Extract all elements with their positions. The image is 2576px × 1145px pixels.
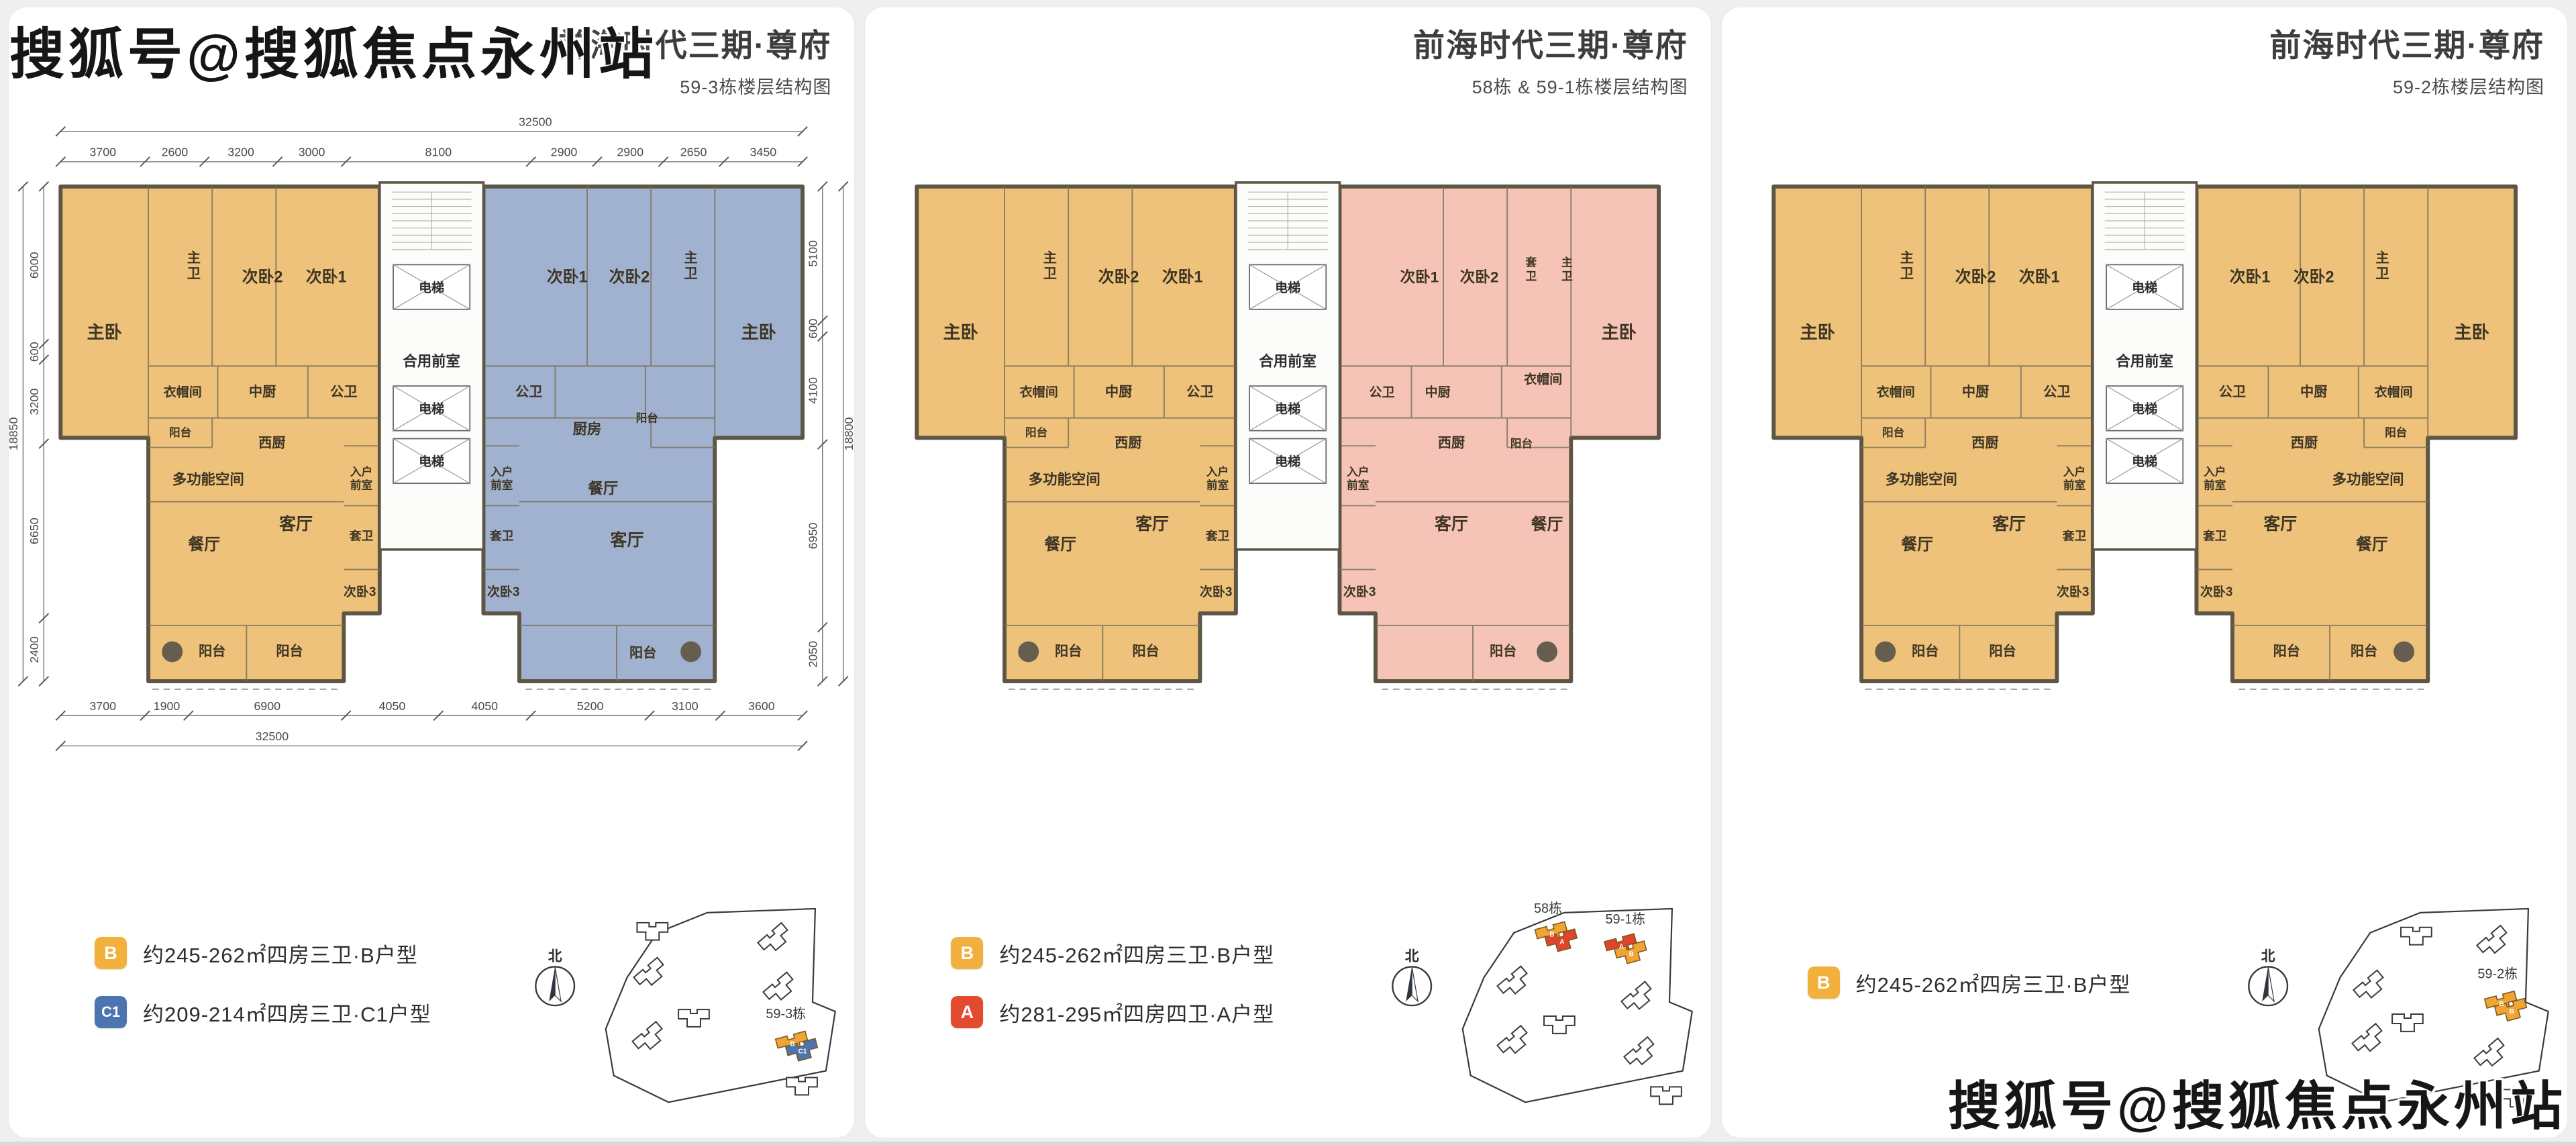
room-label: 次卧1 bbox=[1162, 268, 1203, 287]
room-label: 衣帽间 bbox=[1876, 385, 1914, 400]
room-label: 套卫 bbox=[2203, 529, 2227, 543]
room-label: 套卫 bbox=[1206, 529, 1230, 543]
room-label: 餐厅 bbox=[1531, 515, 1563, 534]
room-label: 阳台 bbox=[1490, 643, 1516, 659]
elevator-icon: 电梯 bbox=[1249, 264, 1326, 309]
dim-label: 3700 bbox=[89, 146, 116, 159]
highlight-building-label: 58栋 bbox=[1534, 901, 1562, 916]
room-label: 主卧 bbox=[741, 322, 776, 342]
room-label: 餐厅 bbox=[189, 536, 221, 554]
room-label: 主卫 bbox=[1900, 250, 1913, 282]
room-label: 西厨 bbox=[258, 436, 285, 451]
room-label: 餐厅 bbox=[1045, 536, 1077, 554]
room-label: 主卫 bbox=[1043, 250, 1057, 282]
dim-total-label: 18800 bbox=[842, 417, 854, 451]
highlight-building-label: 59-2栋 bbox=[2477, 966, 2518, 981]
panel-59-2: 前海时代三期·尊府 59-2栋楼层结构图 电梯电梯电梯合用前室主卧主卫次卧2次卧… bbox=[1721, 7, 2568, 1138]
room-label: 阳台 bbox=[1133, 643, 1160, 659]
room-label: 西厨 bbox=[1438, 436, 1465, 451]
legend-item: A约281-295㎡四房四卫·A户型 bbox=[951, 996, 1274, 1028]
dim-total-label: 32500 bbox=[519, 115, 552, 128]
dim-label: 3200 bbox=[227, 146, 254, 159]
room-label: 阳台 bbox=[1912, 643, 1939, 659]
dim-label: 3100 bbox=[672, 699, 699, 713]
unit-left bbox=[60, 187, 380, 689]
room-label: 阳台 bbox=[1510, 437, 1533, 450]
panel-subtitle: 59-3栋楼层结构图 bbox=[9, 72, 831, 99]
room-label: 主卧 bbox=[87, 322, 122, 342]
panel-bottom: B约245-262㎡四房三卫·B户型C1约209-214㎡四房三卫·C1户型 北… bbox=[9, 828, 854, 1138]
legend-item: B约245-262㎡四房三卫·B户型 bbox=[95, 937, 431, 969]
north-label: 北 bbox=[548, 948, 562, 964]
unit-left bbox=[1773, 187, 2093, 689]
dim-label: 6900 bbox=[254, 699, 280, 713]
site-map: 北BC159-3栋 bbox=[527, 901, 854, 1138]
legend: B约245-262㎡四房三卫·B户型A约281-295㎡四房四卫·A户型 bbox=[951, 828, 1274, 1138]
dim-label: 2400 bbox=[28, 636, 41, 663]
elevator-label: 电梯 bbox=[2132, 401, 2157, 417]
elevator-icon: 电梯 bbox=[393, 386, 470, 431]
room-label: 套卫 bbox=[490, 529, 514, 543]
highlight-building-label: 59-3栋 bbox=[766, 1007, 807, 1022]
dim-label: 3700 bbox=[89, 699, 116, 713]
dim-label: 8100 bbox=[425, 146, 452, 159]
dim-label: 2050 bbox=[806, 641, 819, 668]
panel-subtitle: 59-2栋楼层结构图 bbox=[1722, 72, 2544, 99]
room-label: 阳台 bbox=[1025, 426, 1047, 439]
dim-label: 600 bbox=[28, 342, 41, 362]
panel-bottom: B约245-262㎡四房三卫·B户型 北BB59-2栋 bbox=[1722, 828, 2567, 1138]
site-map-svg: 北BC159-3栋 bbox=[527, 901, 854, 1134]
room-label: 阳台 bbox=[2273, 643, 2300, 659]
dim-label: 6000 bbox=[28, 252, 41, 279]
room-label: 衣帽间 bbox=[1524, 372, 1562, 387]
room-label: 阳台 bbox=[199, 643, 225, 659]
room-label: 阳台 bbox=[1989, 643, 2016, 659]
room-label: 餐厅 bbox=[588, 481, 618, 497]
room-label: 中厨 bbox=[249, 384, 276, 400]
room-label: 公卫 bbox=[515, 385, 542, 400]
room-label: 餐厅 bbox=[1901, 536, 1933, 554]
room-label: 公卫 bbox=[2043, 385, 2070, 400]
room-label: 阳台 bbox=[636, 411, 658, 425]
room-label: 次卧1 bbox=[547, 268, 588, 287]
dim-label: 1900 bbox=[154, 699, 181, 713]
room-label: 套卫 bbox=[350, 529, 374, 543]
room-label: 次卧3 bbox=[1200, 584, 1233, 599]
elevator-icon: 电梯 bbox=[2106, 439, 2183, 484]
room-label: 次卧2 bbox=[242, 268, 283, 287]
room-label: 次卧1 bbox=[2018, 268, 2059, 287]
elevator-label: 电梯 bbox=[419, 401, 444, 417]
elevator-label: 电梯 bbox=[1275, 454, 1300, 469]
building-footprint bbox=[787, 1077, 818, 1095]
dim-label: 2900 bbox=[617, 146, 643, 159]
site-map: 北BB59-2栋 bbox=[2240, 901, 2567, 1138]
room-label: 中厨 bbox=[1425, 385, 1451, 400]
room-label: 次卧3 bbox=[2200, 584, 2233, 599]
elevator-icon: 电梯 bbox=[1249, 439, 1326, 484]
room-label: 主卫 bbox=[2375, 250, 2389, 282]
room-label: 套卫 bbox=[2062, 529, 2086, 543]
panel-title: 前海时代三期·尊府 bbox=[865, 19, 1688, 66]
elevator-label: 电梯 bbox=[419, 280, 444, 295]
legend-badge: B bbox=[951, 937, 983, 969]
legend-label: 约245-262㎡四房三卫·B户型 bbox=[999, 938, 1274, 968]
room-label: 西厨 bbox=[1115, 436, 1141, 451]
page: 前海时代三期·尊府 59-3栋楼层结构图 电梯电梯电梯合用前室主卧主卫次卧2次卧… bbox=[0, 0, 2576, 1145]
room-label: 主卧 bbox=[943, 322, 978, 342]
legend-badge: B bbox=[1808, 966, 1840, 999]
core-area: 电梯电梯电梯合用前室 bbox=[2093, 183, 2197, 550]
unit-left bbox=[917, 187, 1237, 689]
panels-row: 前海时代三期·尊府 59-3栋楼层结构图 电梯电梯电梯合用前室主卧主卫次卧2次卧… bbox=[0, 0, 2576, 1145]
elevator-label: 电梯 bbox=[1275, 280, 1300, 295]
room-label: 公卫 bbox=[1370, 385, 1395, 400]
floorplan: 电梯电梯电梯合用前室主卧主卫次卧2次卧1衣帽间中厨公卫阳台西厨多功能空间餐厅客厅… bbox=[865, 103, 1710, 828]
panel-59-3: 前海时代三期·尊府 59-3栋楼层结构图 电梯电梯电梯合用前室主卧主卫次卧2次卧… bbox=[8, 7, 855, 1138]
room-label: 阳台 bbox=[276, 643, 303, 659]
unit-right bbox=[483, 187, 803, 689]
legend-item: C1约209-214㎡四房三卫·C1户型 bbox=[95, 996, 431, 1028]
legend: B约245-262㎡四房三卫·B户型 bbox=[1808, 828, 2131, 1138]
room-label: 阳台 bbox=[1055, 643, 1082, 659]
room-label: 次卧2 bbox=[1460, 268, 1499, 286]
room-label: 多功能空间 bbox=[1885, 470, 1957, 487]
room-label: 公卫 bbox=[2218, 385, 2245, 400]
room-label: 次卧3 bbox=[1343, 584, 1376, 599]
room-label: 西厨 bbox=[1971, 436, 1998, 451]
elevator-label: 电梯 bbox=[2132, 280, 2157, 295]
legend-item: B约245-262㎡四房三卫·B户型 bbox=[951, 937, 1274, 969]
highlight-unit-letter: B bbox=[2500, 1001, 2504, 1008]
legend-item: B约245-262㎡四房三卫·B户型 bbox=[1808, 966, 2131, 999]
room-label: 主卧 bbox=[1800, 322, 1835, 342]
room-label: 衣帽间 bbox=[1020, 385, 1058, 400]
floorplan-svg: 电梯电梯电梯合用前室主卧主卫次卧2次卧1衣帽间中厨公卫阳台西厨多功能空间餐厅客厅… bbox=[1722, 103, 2567, 828]
elevator-label: 电梯 bbox=[419, 454, 444, 469]
dim-label: 6650 bbox=[28, 517, 41, 544]
room-label: 次卧2 bbox=[2294, 268, 2334, 287]
room-label: 主卫 bbox=[187, 250, 201, 282]
panel-title: 前海时代三期·尊府 bbox=[1722, 19, 2544, 66]
floorplan: 电梯电梯电梯合用前室主卧主卫次卧2次卧1衣帽间中厨公卫阳台西厨多功能空间餐厅客厅… bbox=[1722, 103, 2567, 828]
north-label: 北 bbox=[2261, 948, 2275, 964]
room-label: 餐厅 bbox=[2356, 536, 2388, 554]
dim-label: 2650 bbox=[680, 146, 707, 159]
room-label: 厨房 bbox=[573, 420, 602, 437]
room-label: 次卧3 bbox=[2057, 584, 2090, 599]
room-label: 次卧1 bbox=[306, 268, 347, 287]
highlight-unit-letter: C1 bbox=[798, 1048, 807, 1056]
room-label: 阳台 bbox=[169, 426, 191, 439]
room-label: 客厅 bbox=[611, 530, 644, 550]
room-label: 次卧2 bbox=[1955, 268, 1996, 287]
room-label: 多功能空间 bbox=[2332, 470, 2404, 487]
dim-label: 3200 bbox=[28, 389, 41, 415]
building-footprint bbox=[1651, 1087, 1682, 1104]
room-label: 主卧 bbox=[1602, 322, 1637, 342]
dim-label: 2600 bbox=[162, 146, 189, 159]
room-label: 公卫 bbox=[330, 385, 357, 400]
panel-subtitle: 58栋 & 59-1栋楼层结构图 bbox=[865, 72, 1688, 99]
dim-total-label: 18850 bbox=[9, 417, 20, 451]
elevator-icon: 电梯 bbox=[1249, 386, 1326, 431]
elevator-icon: 电梯 bbox=[393, 439, 470, 484]
legend-badge: B bbox=[95, 937, 127, 969]
site-boundary bbox=[606, 909, 835, 1102]
room-label: 中厨 bbox=[1105, 384, 1132, 400]
room-label: 中厨 bbox=[1962, 384, 1989, 400]
room-label: 西厨 bbox=[2290, 436, 2317, 451]
floorplan-svg: 电梯电梯电梯合用前室主卧主卫次卧2次卧1衣帽间中厨公卫阳台西厨多功能空间餐厅客厅… bbox=[9, 103, 854, 828]
legend-label: 约245-262㎡四房三卫·B户型 bbox=[1856, 968, 2131, 998]
legend-label: 约281-295㎡四房四卫·A户型 bbox=[999, 997, 1274, 1028]
legend-label: 约245-262㎡四房三卫·B户型 bbox=[143, 938, 418, 968]
dim-label: 4100 bbox=[806, 377, 819, 404]
dim-label: 5100 bbox=[806, 240, 819, 267]
room-label: 次卧2 bbox=[609, 268, 650, 287]
room-label: 次卧1 bbox=[2229, 268, 2270, 287]
room-label: 公卫 bbox=[1187, 385, 1214, 400]
core-area: 电梯电梯电梯合用前室 bbox=[380, 183, 484, 550]
room-label: 阳台 bbox=[2385, 426, 2407, 439]
panel-header: 前海时代三期·尊府 58栋 & 59-1栋楼层结构图 bbox=[865, 7, 1710, 99]
room-label: 次卧2 bbox=[1098, 268, 1139, 287]
dim-label: 3600 bbox=[748, 699, 775, 713]
highlight-unit-letter: A bbox=[1559, 939, 1564, 946]
floorplan: 电梯电梯电梯合用前室主卧主卫次卧2次卧1衣帽间中厨公卫阳台西厨多功能空间餐厅客厅… bbox=[9, 103, 854, 828]
legend: B约245-262㎡四房三卫·B户型C1约209-214㎡四房三卫·C1户型 bbox=[95, 828, 431, 1138]
dim-label: 6950 bbox=[806, 522, 819, 549]
room-label: 主卧 bbox=[2454, 322, 2489, 342]
highlight-unit-letter: B bbox=[2509, 1008, 2514, 1015]
site-map-svg: 北BA58栋AB59-1栋 bbox=[1384, 901, 1711, 1134]
room-label: 衣帽间 bbox=[2374, 385, 2412, 400]
room-label: 客厅 bbox=[1435, 514, 1468, 534]
floorplan-svg: 电梯电梯电梯合用前室主卧主卫次卧2次卧1衣帽间中厨公卫阳台西厨多功能空间餐厅客厅… bbox=[865, 103, 1710, 828]
elevator-label: 电梯 bbox=[1275, 401, 1300, 417]
room-label: 多功能空间 bbox=[1029, 470, 1100, 487]
legend-label: 约209-214㎡四房三卫·C1户型 bbox=[143, 997, 431, 1028]
compass-icon: 北 bbox=[2249, 948, 2287, 1005]
compass-icon: 北 bbox=[536, 948, 575, 1005]
dim-label: 5200 bbox=[577, 699, 604, 713]
dim-label: 4050 bbox=[379, 699, 406, 713]
highlight-unit-letter: B bbox=[1549, 932, 1554, 939]
legend-badge: C1 bbox=[95, 996, 127, 1028]
dim-label: 600 bbox=[806, 319, 819, 339]
room-label: 次卧3 bbox=[487, 584, 520, 599]
room-label: 衣帽间 bbox=[164, 385, 202, 400]
highlight-unit-letter: B bbox=[1629, 951, 1633, 958]
core-area: 电梯电梯电梯合用前室 bbox=[1236, 183, 1340, 550]
room-label: 中厨 bbox=[2300, 384, 2327, 400]
dim-label: 3000 bbox=[299, 146, 325, 159]
building-footprint bbox=[2502, 1089, 2532, 1107]
panel-header: 前海时代三期·尊府 59-2栋楼层结构图 bbox=[1722, 7, 2567, 99]
panel-header: 前海时代三期·尊府 59-3栋楼层结构图 bbox=[9, 7, 854, 99]
shared-front-room-label: 合用前室 bbox=[1259, 352, 1317, 369]
elevator-icon: 电梯 bbox=[2106, 386, 2183, 431]
shared-front-room-label: 合用前室 bbox=[2116, 352, 2173, 369]
room-label: 客厅 bbox=[2263, 514, 2297, 534]
compass-icon: 北 bbox=[1392, 948, 1431, 1005]
north-label: 北 bbox=[1404, 948, 1419, 964]
panel-bottom: B约245-262㎡四房三卫·B户型A约281-295㎡四房四卫·A户型 北BA… bbox=[865, 828, 1710, 1138]
room-label: 次卧1 bbox=[1400, 268, 1439, 286]
elevator-icon: 电梯 bbox=[2106, 264, 2183, 309]
unit-right bbox=[2196, 187, 2516, 689]
highlight-unit-letter: B bbox=[790, 1041, 795, 1048]
room-label: 客厅 bbox=[1135, 514, 1169, 534]
room-label: 客厅 bbox=[1992, 514, 2026, 534]
highlight-building-label: 59-1栋 bbox=[1605, 912, 1645, 927]
site-map: 北BA58栋AB59-1栋 bbox=[1384, 901, 1711, 1138]
elevator-icon: 电梯 bbox=[393, 264, 470, 309]
page-bottom-divider bbox=[0, 1142, 2576, 1145]
room-label: 阳台 bbox=[1882, 426, 1904, 439]
room-label: 阳台 bbox=[629, 644, 656, 660]
highlight-unit-letter: A bbox=[1618, 944, 1623, 951]
legend-badge: A bbox=[951, 996, 983, 1028]
room-label: 多功能空间 bbox=[172, 470, 244, 487]
room-label: 阳台 bbox=[2351, 643, 2377, 659]
room-label: 主卫 bbox=[684, 250, 697, 282]
shared-front-room-label: 合用前室 bbox=[403, 352, 460, 369]
site-map-svg: 北BB59-2栋 bbox=[2240, 901, 2567, 1134]
panel-title: 前海时代三期·尊府 bbox=[9, 19, 831, 66]
dim-label: 4050 bbox=[471, 699, 498, 713]
dim-label: 3450 bbox=[750, 146, 777, 159]
dim-label: 2900 bbox=[551, 146, 578, 159]
unit-right bbox=[1340, 187, 1659, 689]
panel-58-59-1: 前海时代三期·尊府 58栋 & 59-1栋楼层结构图 电梯电梯电梯合用前室主卧主… bbox=[864, 7, 1711, 1138]
elevator-label: 电梯 bbox=[2132, 454, 2157, 469]
room-label: 次卧3 bbox=[344, 584, 376, 599]
dim-total-label: 32500 bbox=[256, 730, 289, 743]
room-label: 客厅 bbox=[279, 514, 313, 534]
